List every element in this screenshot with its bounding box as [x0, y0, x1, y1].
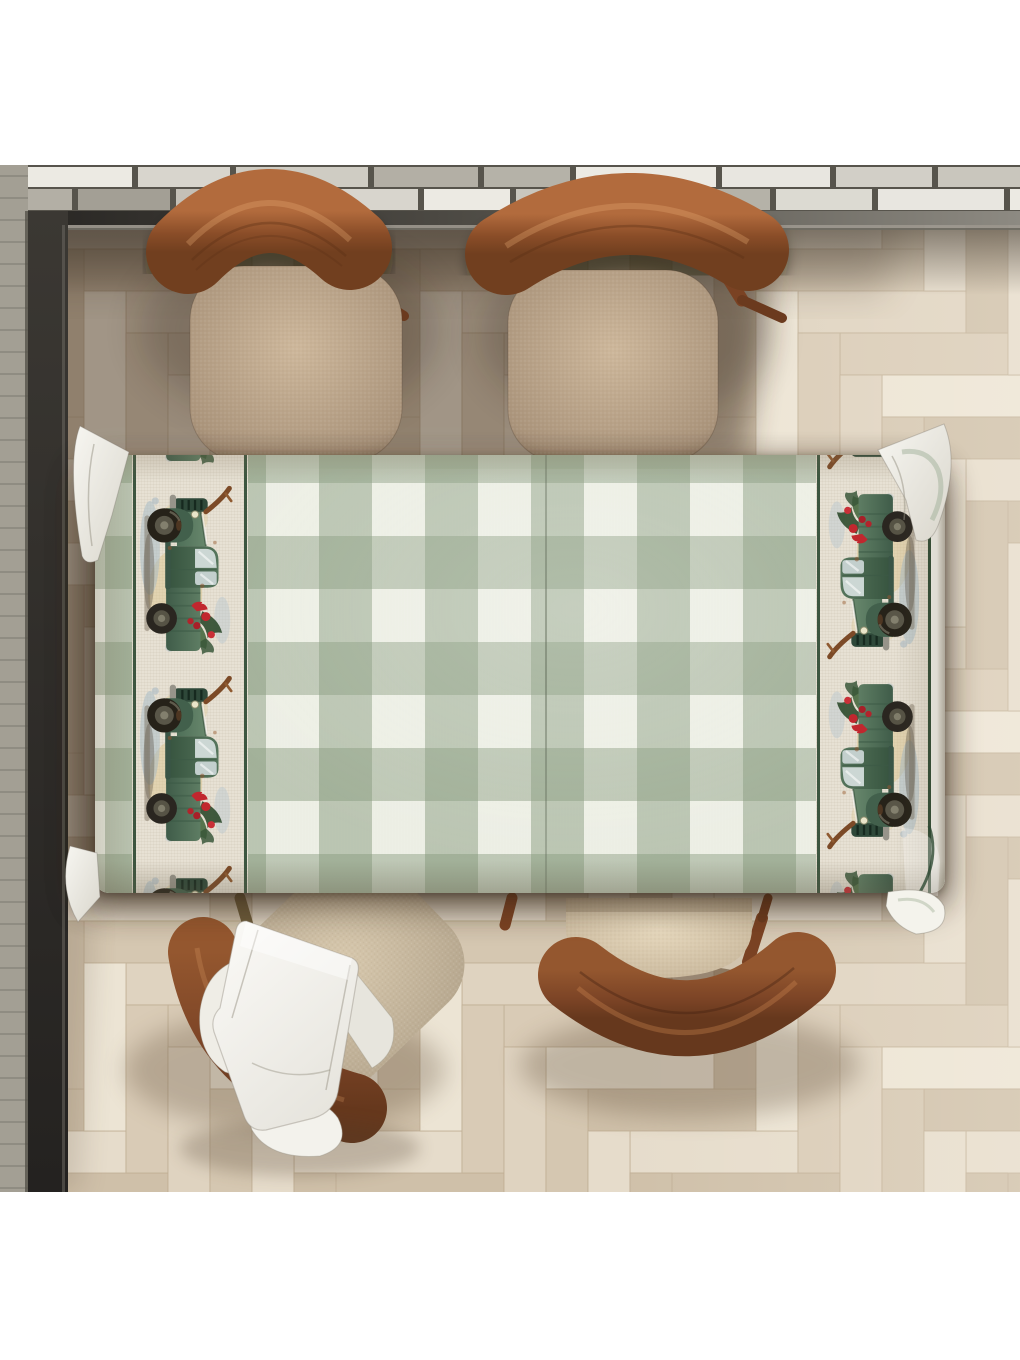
- corner-drape-bottom-right: [886, 826, 945, 934]
- product-photo-stage: [0, 0, 1020, 1360]
- corner-flap-top-left: [73, 426, 129, 562]
- draped-napkin: [180, 921, 420, 1176]
- corner-flap-bottom-left: [66, 846, 101, 922]
- corner-flap-top-right: [878, 424, 951, 541]
- drapes-overlay: [0, 0, 1020, 1360]
